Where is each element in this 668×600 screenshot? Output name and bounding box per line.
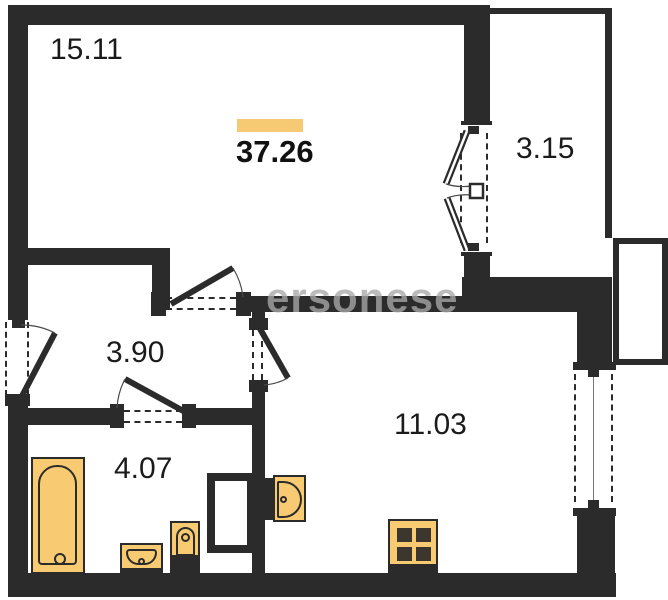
door-jamb [461, 121, 492, 125]
total-area-accent-bar [237, 119, 303, 132]
room-area-label-balcony: 3.15 [516, 132, 574, 166]
toilet-cistern [170, 555, 200, 576]
window-dashes [611, 374, 613, 502]
balcony-wall-top [486, 8, 612, 14]
wall-segment [8, 5, 28, 320]
wall-segment [462, 277, 612, 312]
kitchen-sink-faucet [280, 496, 287, 503]
bathtub-drain [54, 553, 66, 565]
toilet [170, 521, 200, 557]
washbasin-drain [138, 558, 145, 565]
door-leaf-core [447, 198, 467, 250]
door-swing-arc [446, 184, 471, 187]
washbasin [120, 543, 163, 570]
stove-burner [397, 547, 412, 561]
door-jamb [461, 252, 492, 256]
door-jamb [236, 292, 251, 316]
door-opening-dashes [460, 133, 462, 243]
washbasin-base [120, 568, 163, 576]
bathtub [31, 457, 85, 574]
door-leaf [125, 379, 187, 413]
watermark-text: ersonese [266, 274, 458, 322]
room-area-label-living: 15.11 [50, 33, 123, 67]
door-jamb [468, 126, 479, 134]
door-jamb [12, 318, 25, 328]
door-opening-dashes [27, 322, 29, 396]
door-jamb [249, 380, 268, 392]
kitchen-sink-mount [265, 478, 274, 520]
door-swing-arc [447, 195, 471, 198]
door-handle [470, 184, 483, 198]
door-jamb [468, 243, 479, 251]
door-leaf [446, 131, 467, 184]
wall-segment [577, 516, 615, 597]
balcony-wall-right [605, 8, 612, 238]
door-opening-dashes [124, 421, 182, 423]
stove-base [388, 564, 438, 573]
wall-segment [28, 248, 170, 265]
wall-segment [8, 400, 28, 597]
room-area-label-hallway: 3.90 [106, 336, 164, 370]
door-opening-dashes [261, 330, 263, 380]
stove-burner [416, 528, 431, 542]
door-opening-dashes [166, 308, 236, 310]
room-area-label-bathroom: 4.07 [114, 452, 172, 486]
room-area-label-kitchen: 11.03 [394, 408, 467, 442]
wall-segment [464, 5, 490, 123]
door-jamb [110, 404, 124, 428]
wall-segment [577, 312, 612, 363]
door-opening-dashes [5, 322, 7, 396]
total-area-label: 37.26 [236, 134, 314, 170]
wall-segment [28, 408, 113, 425]
door-jamb [182, 404, 196, 428]
door-jamb [151, 292, 166, 316]
bathtub-basin [38, 465, 77, 565]
door-opening-dashes [124, 410, 182, 412]
door-opening-dashes [486, 133, 488, 243]
window-glass-line [593, 377, 594, 502]
window-frame [588, 368, 599, 377]
stove-burner [416, 547, 431, 561]
wall-segment [194, 408, 265, 425]
wall-segment [8, 5, 490, 25]
door-leaf-core [446, 131, 467, 184]
toilet-drain [181, 533, 190, 542]
adjacent-balcony-outline [613, 238, 668, 365]
door-leaf [259, 327, 288, 378]
stove-burner [397, 528, 412, 542]
door-opening-dashes [252, 330, 254, 380]
floor-plan: 15.11 37.26 3.15 3.90 11.03 4.07 ersones… [0, 0, 668, 600]
window-frame [573, 508, 616, 516]
wall-segment [8, 573, 616, 597]
door-jamb [5, 394, 30, 406]
window-frame [588, 500, 599, 509]
stove [388, 519, 438, 566]
door-leaf [447, 198, 467, 250]
window-dashes [574, 374, 576, 502]
ventilation-shaft [207, 473, 255, 553]
kitchen-sink [273, 475, 306, 522]
door-opening-dashes [166, 297, 236, 299]
